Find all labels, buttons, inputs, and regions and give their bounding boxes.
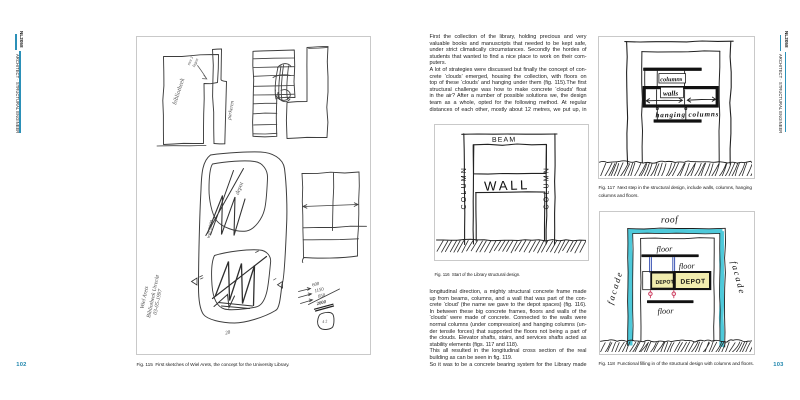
- svg-text:WALL: WALL: [484, 177, 530, 194]
- svg-text:floor: floor: [656, 245, 673, 255]
- svg-text:20: 20: [224, 329, 231, 336]
- svg-text:walls: walls: [663, 89, 679, 97]
- svg-text:floor: floor: [657, 307, 674, 317]
- svg-text:floor: floor: [678, 262, 695, 272]
- svg-text:4 2: 4 2: [321, 318, 327, 324]
- svg-text:roof: roof: [660, 214, 679, 226]
- svg-text:850: 850: [317, 293, 326, 300]
- svg-text:facade: facade: [729, 260, 748, 296]
- svg-text:DEPOT: DEPOT: [655, 280, 674, 287]
- svg-text:parkeren: parkeren: [226, 100, 235, 121]
- svg-text:COLUMN: COLUMN: [461, 166, 468, 210]
- svg-text:DEPOT: DEPOT: [680, 279, 705, 286]
- svg-text:columns: columns: [660, 76, 683, 83]
- svg-text:facade: facade: [604, 270, 624, 306]
- svg-text:depot: depot: [234, 181, 245, 196]
- svg-text:wal 2000: wal 2000: [206, 219, 215, 239]
- svg-text:bibliotheek: bibliotheek: [171, 77, 186, 106]
- svg-text:BEAM: BEAM: [492, 137, 516, 144]
- svg-text:hanging columns: hanging columns: [655, 110, 719, 119]
